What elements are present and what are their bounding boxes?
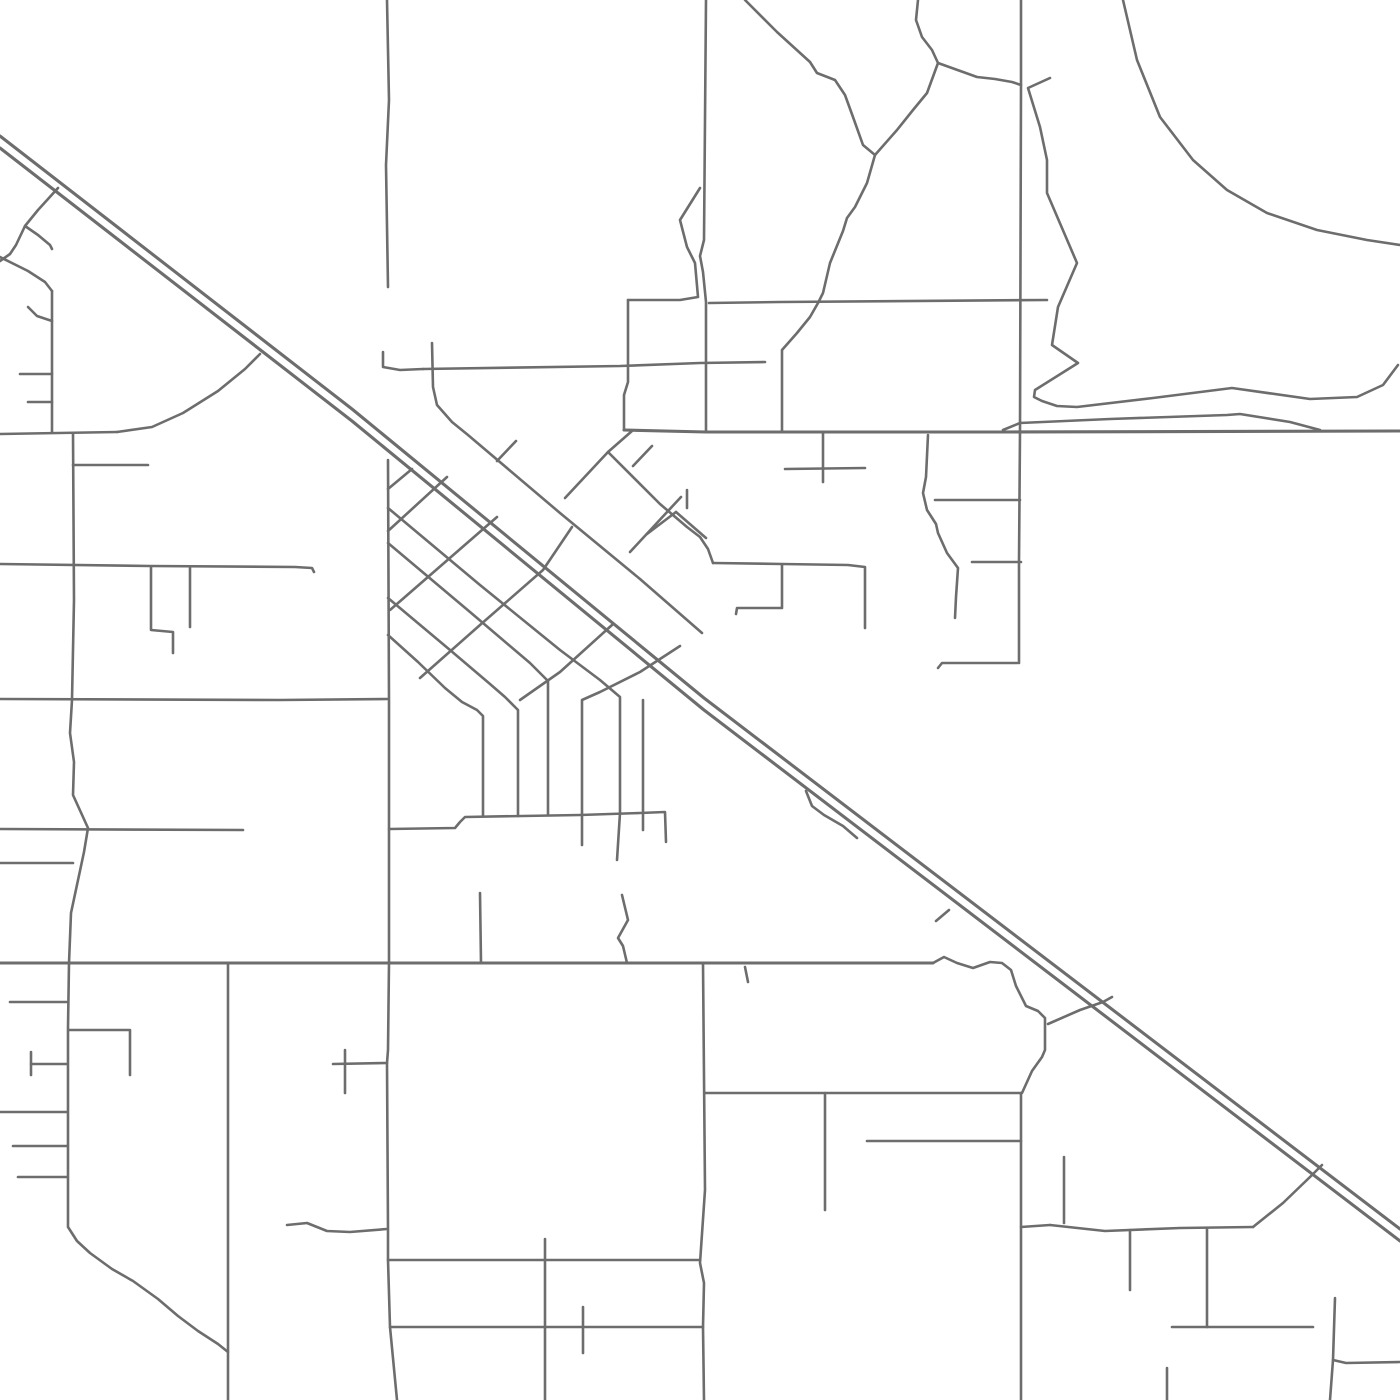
road-west-stub-v1 bbox=[151, 567, 173, 653]
road-south-squiggle-1228 bbox=[287, 1223, 387, 1232]
road-nw-curve-a bbox=[0, 188, 58, 261]
road-ne-alley-tick-b bbox=[633, 446, 652, 466]
road-west-h-433 bbox=[0, 432, 117, 434]
road-south-tick-1021 bbox=[1021, 1225, 1050, 1227]
road-grid-parallel-2 bbox=[388, 543, 548, 815]
street-map-canvas bbox=[0, 0, 1400, 1400]
road-west-vertical-2 bbox=[68, 433, 228, 1352]
road-cross-plus-h bbox=[785, 468, 865, 469]
road-grid-perp-3 bbox=[420, 527, 572, 678]
road-grid-parallel-4 bbox=[388, 635, 483, 816]
road-nw-branch-a bbox=[25, 226, 52, 249]
road-ne-curve-628 bbox=[628, 188, 700, 300]
road-north-h-368 bbox=[423, 362, 765, 369]
road-ne-h-563 bbox=[713, 563, 865, 628]
road-main-h-432 bbox=[624, 430, 1400, 432]
road-south-vertical-480 bbox=[480, 893, 481, 963]
road-se-diagonal-branch bbox=[1253, 1165, 1322, 1227]
road-highway-merge-spur bbox=[1048, 997, 1112, 1024]
road-nw-curve-b bbox=[28, 307, 52, 321]
road-ne-wiggle-road bbox=[1028, 78, 1398, 407]
road-grid-parallel-1 bbox=[388, 508, 620, 860]
road-highway-siding bbox=[806, 791, 857, 838]
road-highway-line-1 bbox=[0, 136, 1400, 1229]
road-north-vertical-4 bbox=[1019, 0, 1021, 663]
road-north-h-663 bbox=[938, 663, 1017, 668]
road-north-vertical-1 bbox=[386, 0, 389, 287]
road-ne-block-3 bbox=[676, 512, 706, 538]
road-grid-perp-4 bbox=[520, 625, 612, 700]
road-network-svg bbox=[0, 0, 1400, 1400]
road-ne-branch-e bbox=[938, 63, 1021, 85]
road-ne-big-arc bbox=[1123, 0, 1400, 245]
road-main-street-ne bbox=[432, 343, 702, 633]
road-big-curve-1 bbox=[745, 0, 875, 432]
road-se-vertical-1333 bbox=[1330, 1298, 1335, 1400]
road-comb-horizontal bbox=[389, 812, 666, 842]
road-ne-h-608 bbox=[736, 565, 782, 614]
road-south-tick-745 bbox=[745, 967, 748, 982]
road-north-hook bbox=[383, 352, 423, 370]
road-south-vertical-703 bbox=[700, 963, 705, 1400]
road-west-h-829 bbox=[0, 829, 243, 830]
road-west-h-564 bbox=[0, 564, 314, 572]
road-west-h-699 bbox=[0, 699, 388, 700]
road-west-curve-to-highway bbox=[117, 354, 260, 432]
road-grid-perp-2 bbox=[390, 517, 497, 610]
road-ne-perp-a bbox=[630, 497, 681, 552]
road-curl-ramp-road bbox=[705, 957, 1045, 1093]
road-ne-street-2 bbox=[608, 452, 713, 563]
road-highway-crossing-tick bbox=[936, 910, 949, 921]
road-nw-road-b bbox=[0, 257, 52, 291]
road-sw-corner-1030 bbox=[69, 1030, 130, 1075]
road-grid-parallel-3 bbox=[388, 598, 518, 816]
road-grid-tick-s1 bbox=[388, 469, 412, 489]
road-ne-road-423 bbox=[1003, 414, 1320, 430]
road-big-curve-2 bbox=[875, 0, 938, 155]
road-wavy-vertical-928 bbox=[923, 435, 958, 618]
road-s-t-right-h bbox=[333, 1063, 387, 1064]
road-se-branch-1362 bbox=[1333, 1360, 1400, 1363]
road-grid-perp-1 bbox=[388, 477, 447, 531]
road-south-wavy-624 bbox=[618, 895, 628, 963]
road-north-h-302 bbox=[709, 300, 1047, 303]
road-se-h-1227 bbox=[1050, 1225, 1253, 1231]
road-north-vertical-3 bbox=[700, 0, 706, 432]
road-ne-alley-tick-a bbox=[497, 441, 516, 461]
